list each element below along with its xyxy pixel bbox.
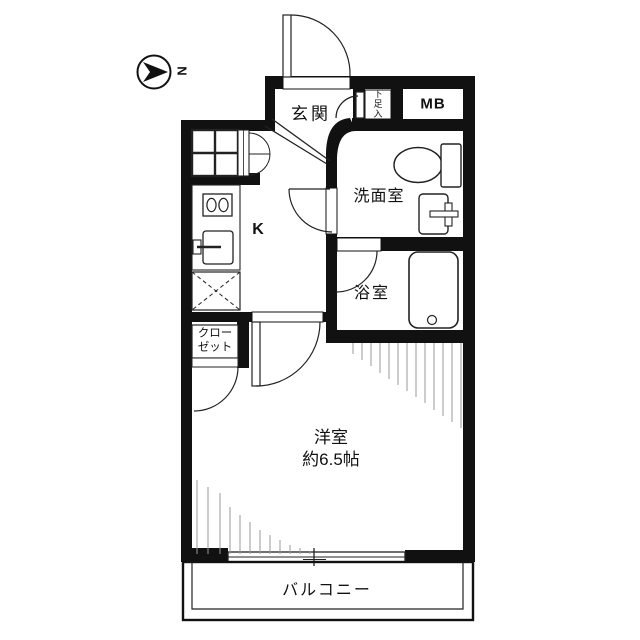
closet-label-line1: クロー [198,327,233,341]
genkan-step-line-lower [265,126,327,164]
closet-label-line2: ゼット [198,341,233,355]
meter-box-label: MB [420,96,445,113]
bath-door-opening [337,238,381,251]
closet-label: クロー ゼット [198,327,233,356]
room-door-leaf [252,322,260,386]
sloped-ceiling-hatch-bottom-left [197,480,310,554]
main-room-size: 約6.5帖 [302,449,360,471]
main-room-name: 洋室 [302,427,360,449]
wall-bottom-right [405,550,473,562]
floor-plan: N 玄関 下足入 MB 洗面室 K 浴室 クロー ゼット 洋室 約6.5帖 バル… [0,0,640,640]
wall-room-top [181,312,252,322]
stove-burner-right [219,198,228,211]
wall-right [463,76,475,562]
wall-closet-right [237,322,249,368]
washroom-label: 洗面室 [353,182,404,206]
stove-burner-left [207,198,216,211]
washroom-door-opening [326,188,337,234]
sloped-ceiling-hatch-under-bath [353,343,461,428]
wall-under-mb [352,118,475,131]
floor-plan-drawing [0,0,640,640]
kitchen-fixtures [192,130,270,310]
bathroom-fixtures [409,252,458,328]
wall-bottom-left [181,548,228,562]
genkan-label: 玄関 [291,100,331,125]
bathtub-drain [428,316,437,325]
entry-door-opening [283,77,350,89]
wall-left [181,120,192,562]
room-door-opening [252,312,323,322]
entry-door-swing-arc [291,15,350,76]
north-arrow-icon [138,56,171,89]
closet-door-closed [192,358,238,367]
balcony-label: バルコニー [282,576,372,600]
main-room-label: 洋室 約6.5帖 [302,427,360,471]
room-door-swing-arc [256,322,320,386]
wall-mb-divider [391,89,403,120]
entry-door-leaf [283,15,291,77]
shoe-storage-label: 下足入 [372,89,385,119]
toilet-bowl [394,148,442,183]
closet-door-swing-arc [194,367,238,411]
wall-bath-bottom [326,330,473,343]
washbasin-faucet-spout [430,211,458,217]
genkan-step-line-upper [272,119,330,161]
north-label: N [175,66,190,75]
bathroom-label: 浴室 [354,279,390,303]
toilet-tank [441,144,461,187]
kitchen-label: K [252,221,264,239]
wall-room-top-pillar [323,312,337,322]
